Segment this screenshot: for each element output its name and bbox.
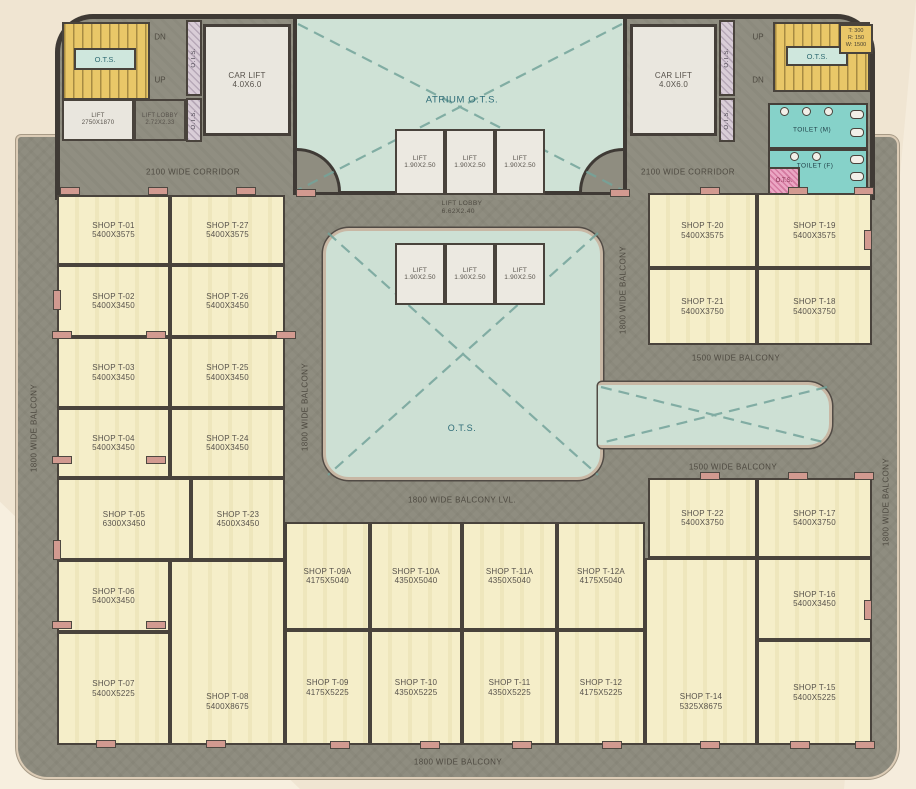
lift-cell: LIFT1.90X2.50 — [445, 129, 495, 195]
shop-t-05: SHOP T-056300X3450 — [57, 478, 191, 560]
shop-t-03: SHOP T-035400X3450 — [57, 337, 170, 408]
shop-t-07: SHOP T-075400X5225 — [57, 632, 170, 745]
lift-lobby-dims: 2.72X2.33 — [145, 120, 174, 127]
shop-t-26: SHOP T-265400X3450 — [170, 265, 285, 337]
wc-icon — [850, 110, 864, 119]
ots-courtyard-label: O.T.S. — [448, 423, 477, 433]
washbasin-icon — [790, 152, 799, 161]
ots-label: O.T.S. — [95, 55, 116, 64]
toilet-women-label: TOILET (F) — [797, 163, 834, 170]
lift-cell: LIFT1.90X2.50 — [445, 243, 495, 305]
atrium-ots-label: ATRIUM O.T.S. — [426, 95, 499, 106]
balcony-1500-label-upper: 1500 WIDE BALCONY — [692, 354, 780, 363]
shop-t-10a: SHOP T-10A4350X5040 — [370, 522, 462, 630]
balcony-1500-label-lower: 1500 WIDE BALCONY — [689, 463, 777, 472]
lift-cell: LIFT1.90X2.50 — [395, 129, 445, 195]
balcony-label-midleft: 1800 WIDE BALCONY — [301, 363, 310, 451]
ots-shaft: O.T.S. — [186, 98, 202, 142]
balcony-lvl-label: 1800 WIDE BALCONY LVL. — [408, 496, 516, 505]
shop-t-11: SHOP T-114350X5225 — [462, 630, 557, 745]
lift-cell: LIFT1.90X2.50 — [495, 129, 545, 195]
corridor-label-left: 2100 WIDE CORRIDOR — [146, 168, 240, 177]
stair-left-dn-label: DN — [154, 33, 166, 42]
toilet-men-label: TOILET (M) — [793, 127, 831, 134]
lift-dims: 2750X1870 — [82, 120, 115, 127]
shop-t-27: SHOP T-275400X3575 — [170, 195, 285, 265]
balcony-label-left: 1800 WIDE BALCONY — [30, 384, 39, 472]
washbasin-icon — [780, 107, 789, 116]
shop-t-20: SHOP T-205400X3575 — [648, 193, 757, 268]
shop-t-15: SHOP T-155400X5225 — [757, 640, 872, 745]
shop-t-16: SHOP T-165400X3450 — [757, 558, 872, 640]
stair-legend: T: 300 R: 150 W: 1500 — [839, 24, 873, 54]
shop-t-14: SHOP T-145325X8675 — [645, 558, 757, 745]
car-lift-left: CAR LIFT 4.0X6.0 — [203, 24, 291, 136]
lift-lobby-label: LIFT LOBBY — [142, 113, 178, 120]
shop-t-18: SHOP T-185400X3750 — [757, 268, 872, 345]
ots-shaft: O.T.S. — [719, 98, 735, 142]
balcony-label-bottom: 1800 WIDE BALCONY — [414, 758, 502, 767]
shop-t-01: SHOP T-015400X3575 — [57, 195, 170, 265]
wc-icon — [850, 155, 864, 164]
car-lift-right: CAR LIFT 4.0X6.0 — [630, 24, 717, 136]
floor-plan: O.T.S. DN UP LIFT 2750X1870 LIFT LOBBY 2… — [0, 0, 916, 789]
ots-void-arm — [598, 382, 832, 448]
washbasin-icon — [824, 107, 833, 116]
shop-t-23: SHOP T-234500X3450 — [191, 478, 285, 560]
shop-t-22: SHOP T-225400X3750 — [648, 478, 757, 558]
shop-t-17: SHOP T-175400X3750 — [757, 478, 872, 558]
lift-cell: LIFT1.90X2.50 — [395, 243, 445, 305]
lift-room: LIFT 2750X1870 — [62, 99, 134, 141]
lift-label: LIFT — [91, 113, 104, 120]
stair-right-up-label: UP — [752, 33, 763, 42]
corridor-label-right: 2100 WIDE CORRIDOR — [641, 168, 735, 177]
shop-t-19: SHOP T-195400X3575 — [757, 193, 872, 268]
ots-shaft: O.T.S. — [186, 20, 202, 96]
shop-t-02: SHOP T-025400X3450 — [57, 265, 170, 337]
shop-t-25: SHOP T-255400X3450 — [170, 337, 285, 408]
shop-t-12a: SHOP T-12A4175X5040 — [557, 522, 645, 630]
wc-icon — [850, 128, 864, 137]
stair-left-up-label: UP — [154, 76, 165, 85]
ots-shaft: O.T.S. — [719, 20, 735, 96]
shop-t-10: SHOP T-104350X5225 — [370, 630, 462, 745]
stair-left-ots: O.T.S. — [74, 48, 136, 70]
balcony-label-midright: 1800 WIDE BALCONY — [619, 246, 628, 334]
shop-t-12: SHOP T-124175X5225 — [557, 630, 645, 745]
washbasin-icon — [812, 152, 821, 161]
balcony-label-right: 1800 WIDE BALCONY — [882, 458, 891, 546]
stair-right-dn-label: DN — [752, 76, 764, 85]
shop-t-09: SHOP T-094175X5225 — [285, 630, 370, 745]
shop-t-21: SHOP T-215400X3750 — [648, 268, 757, 345]
lift-lobby-room: LIFT LOBBY 2.72X2.33 — [134, 99, 186, 141]
lift-cell: LIFT1.90X2.50 — [495, 243, 545, 305]
shop-t-24: SHOP T-245400X3450 — [170, 408, 285, 478]
shop-t-04: SHOP T-045400X3450 — [57, 408, 170, 478]
shop-t-09a: SHOP T-09A4175X5040 — [285, 522, 370, 630]
wc-icon — [850, 172, 864, 181]
washbasin-icon — [802, 107, 811, 116]
shop-t-11a: SHOP T-11A4350X5040 — [462, 522, 557, 630]
central-lift-lobby-label: LIFT LOBBY 6.62X2.40 — [442, 200, 483, 216]
shop-t-08: SHOP T-085400X8675 — [170, 560, 285, 745]
